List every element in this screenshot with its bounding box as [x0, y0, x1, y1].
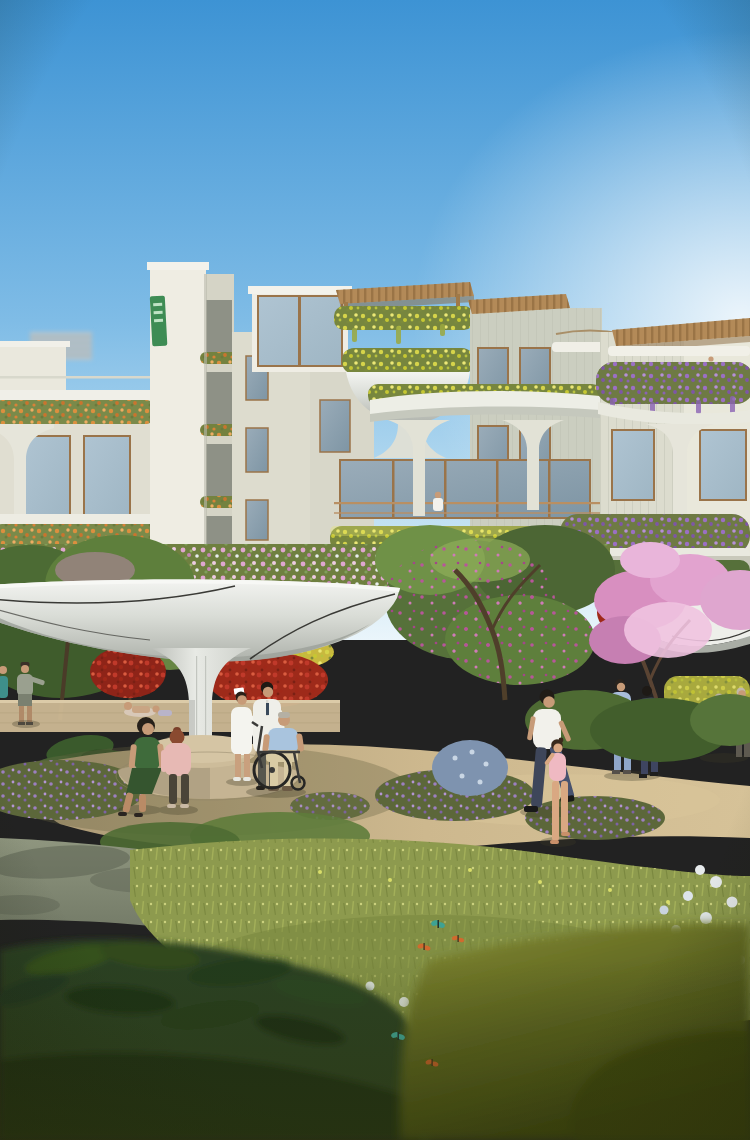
rendering-stage: Garden courtyard rendering of a terraced… — [0, 0, 750, 1140]
bottom-wash — [0, 960, 750, 1140]
rendering-canvas: Garden courtyard rendering of a terraced… — [0, 0, 750, 1140]
